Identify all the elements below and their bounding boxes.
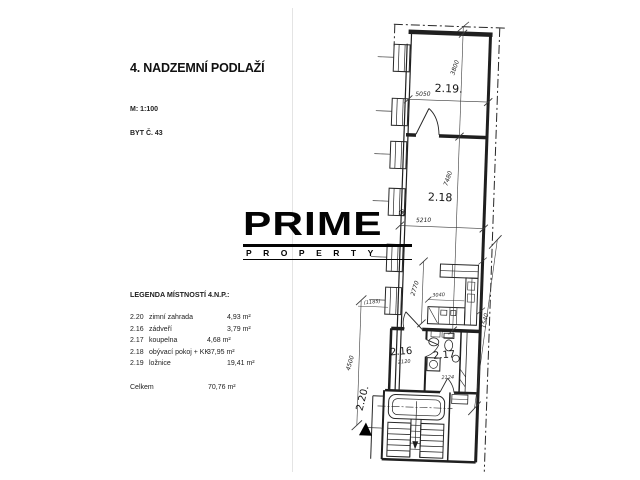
logo-divider-bottom — [243, 259, 412, 261]
logo-brand-text: PRIME — [243, 209, 383, 239]
logo-wordmark: PRIME ® — [243, 209, 413, 247]
dim-label-2120: 2120 — [398, 359, 411, 366]
dim-label-1185: (1185) — [364, 299, 381, 307]
room-label-2-19: 2.19. — [434, 82, 462, 96]
dim-label-3040: 3040 — [432, 292, 445, 299]
dim-label-3800: 3800 — [449, 59, 461, 76]
room-label-2-18: 2.18 — [428, 191, 453, 205]
window-symbols — [369, 44, 410, 315]
prime-property-logo: PRIME ® PROPERTY — [243, 209, 413, 260]
room-label-2-20: 2.20. — [355, 385, 372, 412]
dim-label-2770: 2770 — [410, 280, 421, 297]
dim-label-5050: 5050 — [415, 91, 431, 98]
logo-subbrand-text: PROPERTY — [243, 248, 413, 258]
room-label-2-17: 2.17 — [433, 349, 456, 362]
registered-trademark-icon: ® — [399, 208, 406, 218]
entrance-triangle-marker — [359, 422, 372, 435]
room-label-2-16: 2.16 — [390, 346, 413, 359]
dim-label-2124: 2124 — [441, 375, 454, 381]
dim-label-7480: 7480 — [443, 170, 455, 187]
staircase — [364, 390, 468, 463]
dim-label-4500: 4500 — [345, 355, 356, 372]
dim-label-5210: 5210 — [416, 217, 432, 224]
